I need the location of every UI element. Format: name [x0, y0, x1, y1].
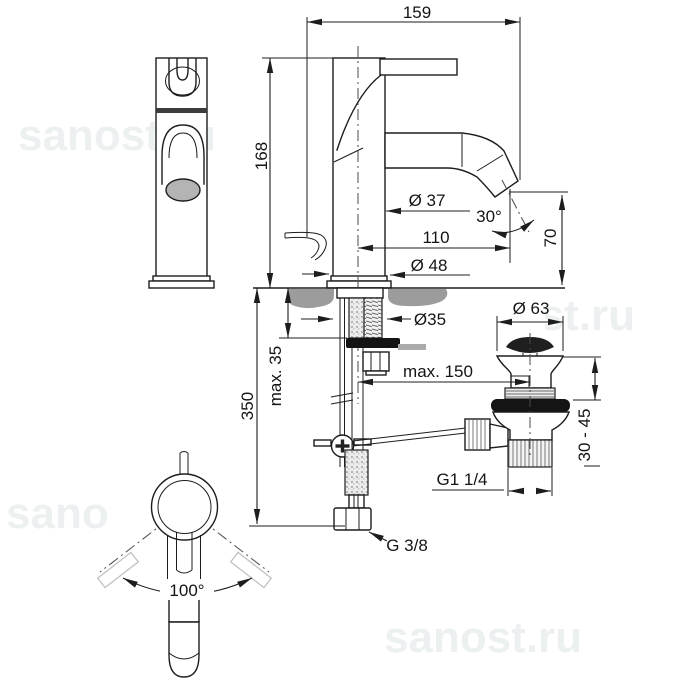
dim-dia37-label: Ø 37 [409, 191, 446, 210]
top-handle-grip-lower [169, 622, 199, 677]
side-base-plate [327, 281, 391, 288]
side-spout [385, 133, 518, 197]
side-body [333, 58, 385, 280]
dim-3045-label: 30 - 45 [575, 409, 594, 462]
dim-g114-label: G1 1/4 [436, 470, 487, 489]
g38-leader-arrow [369, 532, 387, 541]
top-spout-stub [180, 452, 188, 478]
counter-material-left [287, 289, 334, 308]
mounting-nut [363, 352, 389, 371]
spout-axis-centerline [502, 180, 529, 232]
popup-knob-inner [285, 237, 319, 258]
dim-dia35-label: Ø35 [414, 310, 446, 329]
dim-g38-label: G 3/8 [386, 536, 428, 555]
front-base-lip [153, 276, 210, 281]
dim-30deg-label: 30° [476, 207, 502, 226]
hose-collar [349, 495, 364, 508]
joint-pin-left [314, 440, 331, 446]
technical-drawing-page: sanost.ru sanost.ru sanost.ru sanost.ru [0, 0, 700, 700]
dim-168-label: 168 [252, 142, 271, 170]
rod-break-mark-1 [331, 393, 353, 397]
top-view: 100° [98, 452, 272, 678]
dim-350-label: 350 [238, 392, 257, 420]
lever-ghost-right [231, 552, 272, 587]
watermark-bottom: sanost.ru [384, 613, 582, 662]
swivel-angle-label: 100° [169, 581, 204, 600]
mounting-flange [337, 288, 383, 298]
dim-dia48-label: Ø 48 [411, 256, 448, 275]
dim-max35-label: max. 35 [266, 346, 285, 406]
front-base-plate [149, 281, 214, 288]
counter-material-right [388, 289, 447, 306]
hose-hex-nut [334, 508, 371, 530]
side-base-lip [331, 276, 387, 281]
dim-max150-label: max. 150 [403, 362, 473, 381]
front-view [149, 58, 214, 288]
dim-dia63-label: Ø 63 [513, 299, 550, 318]
front-spout-outlet [166, 179, 200, 201]
hose-braided-section [345, 450, 368, 495]
front-body [156, 58, 207, 280]
rubber-gasket [346, 338, 400, 348]
top-body-outer-ring [152, 474, 218, 540]
gasket-shadow [398, 344, 426, 350]
dimension-annotations: 159 168 350 max. 35 Ø 37 110 Ø 48 Ø35 70 [238, 3, 601, 555]
faucet-dimension-diagram: sanost.ru sanost.ru sanost.ru sanost.ru [0, 0, 700, 700]
nut-lip [366, 371, 386, 375]
front-body-seam [156, 108, 207, 113]
threaded-stud [364, 298, 382, 338]
popup-knob-outer [285, 232, 326, 260]
dim-70-label: 70 [541, 229, 560, 248]
dim-110-label: 110 [422, 228, 449, 247]
side-handle-lever [380, 59, 457, 75]
rod-break-mark-2 [331, 400, 353, 404]
dim-159-label: 159 [403, 3, 431, 22]
